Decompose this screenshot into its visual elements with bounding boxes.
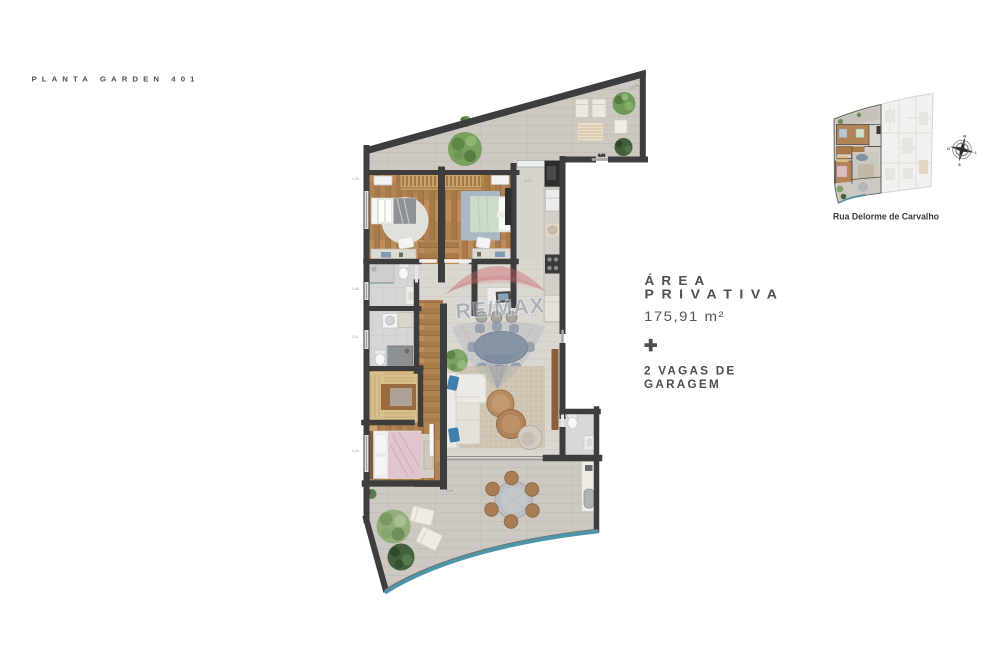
svg-text:2.11: 2.11 <box>352 335 359 339</box>
svg-text:Rua Delorme de Carvalho: Rua Delorme de Carvalho <box>833 212 939 222</box>
svg-text:GARAGEM: GARAGEM <box>644 379 721 391</box>
svg-text:2 VAGAS DE: 2 VAGAS DE <box>644 366 737 378</box>
svg-text:S: S <box>958 162 961 167</box>
svg-text:4.45: 4.45 <box>446 380 450 387</box>
svg-text:3.75: 3.75 <box>524 179 531 183</box>
svg-text:1.30: 1.30 <box>352 177 359 181</box>
svg-text:3.30: 3.30 <box>352 449 359 453</box>
svg-text:1.48: 1.48 <box>352 287 359 291</box>
svg-text:PLANTA GARDEN 401: PLANTA GARDEN 401 <box>32 75 200 84</box>
svg-text:4.04: 4.04 <box>598 154 605 158</box>
svg-text:175,91 m²: 175,91 m² <box>644 308 725 324</box>
svg-text:N: N <box>963 134 966 139</box>
svg-text:2.96: 2.96 <box>446 489 453 493</box>
svg-text:PRIVATIVA: PRIVATIVA <box>645 287 785 302</box>
svg-text:O: O <box>947 146 950 151</box>
